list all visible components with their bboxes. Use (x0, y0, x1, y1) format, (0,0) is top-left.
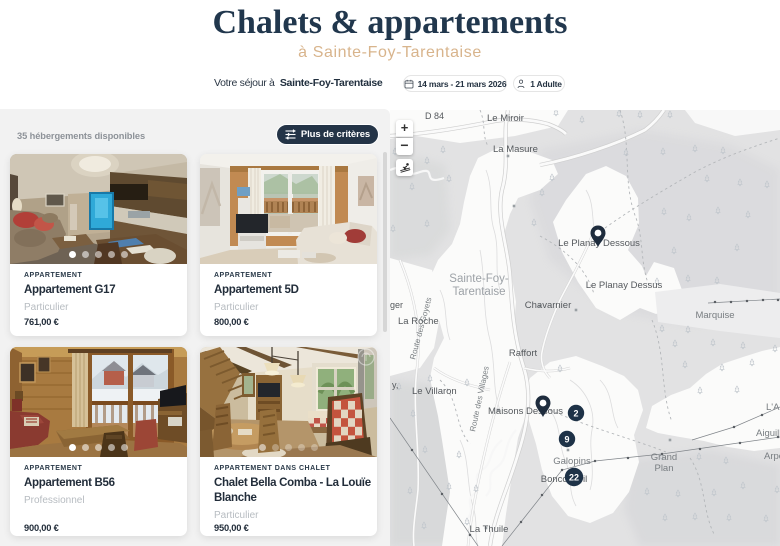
svg-text:La Thuile: La Thuile (470, 524, 509, 535)
svg-text:Maisons Dessous: Maisons Dessous (488, 406, 563, 417)
svg-text:9: 9 (564, 435, 569, 445)
svg-text:Raffort: Raffort (509, 348, 538, 359)
svg-text:Chavarnier: Chavarnier (525, 300, 571, 311)
svg-text:Grand: Grand (651, 452, 677, 463)
svg-text:22: 22 (569, 473, 579, 483)
svg-text:Le Villaron: Le Villaron (412, 386, 457, 397)
svg-text:La Masure: La Masure (493, 144, 538, 155)
svg-text:D 84: D 84 (425, 111, 444, 121)
svg-text:Le Planay Dessus: Le Planay Dessus (586, 280, 663, 291)
svg-text:ger: ger (390, 300, 403, 310)
svg-text:2: 2 (573, 409, 578, 419)
svg-text:y,: y, (392, 380, 398, 390)
svg-text:Marquise: Marquise (695, 310, 734, 321)
svg-text:Tarentaise: Tarentaise (452, 286, 505, 298)
svg-text:Arpettaz: Arpettaz (764, 451, 780, 462)
svg-text:Le Miroir: Le Miroir (487, 113, 524, 124)
svg-text:Sainte-Foy-: Sainte-Foy- (449, 273, 509, 285)
svg-text:Plan: Plan (654, 463, 673, 474)
svg-text:L'Arpette: L'Arpette (766, 402, 780, 413)
svg-text:Aiguille: Aiguille (756, 428, 780, 439)
svg-text:Galopins: Galopins (553, 456, 591, 467)
